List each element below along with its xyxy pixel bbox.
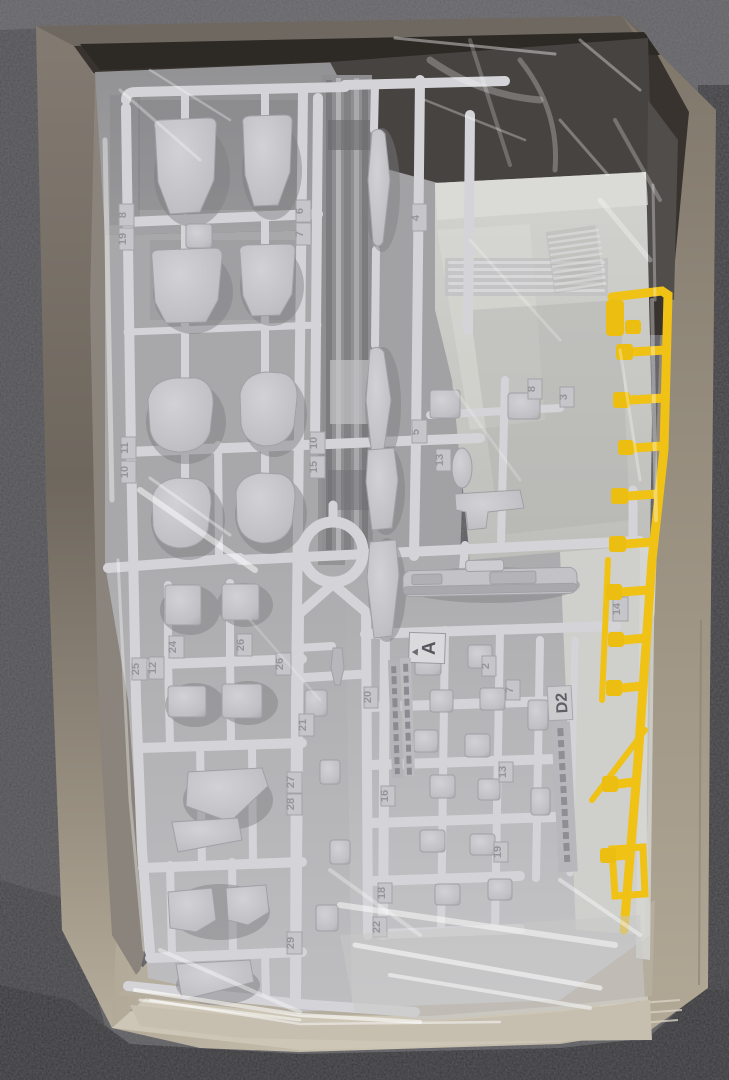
svg-text:22: 22 <box>371 921 383 933</box>
svg-text:10: 10 <box>119 466 131 478</box>
svg-text:D2: D2 <box>553 692 571 713</box>
svg-text:15: 15 <box>308 461 320 473</box>
svg-text:20: 20 <box>362 691 374 703</box>
svg-text:14: 14 <box>611 602 623 615</box>
svg-text:4: 4 <box>410 214 422 221</box>
svg-text:A: A <box>419 641 440 656</box>
svg-text:21: 21 <box>297 719 309 731</box>
svg-text:18: 18 <box>376 887 388 899</box>
svg-text:7: 7 <box>504 687 516 693</box>
svg-text:11: 11 <box>119 442 131 454</box>
svg-text:19: 19 <box>117 233 129 245</box>
svg-text:24: 24 <box>167 640 179 653</box>
svg-text:28: 28 <box>285 798 297 810</box>
svg-text:10: 10 <box>308 437 320 449</box>
svg-text:29: 29 <box>285 937 297 949</box>
svg-text:2: 2 <box>480 663 492 669</box>
svg-text:7: 7 <box>294 231 306 237</box>
svg-text:5: 5 <box>410 429 422 435</box>
svg-text:26: 26 <box>235 639 247 651</box>
svg-text:19: 19 <box>492 846 504 858</box>
svg-text:12: 12 <box>147 662 159 674</box>
svg-text:13: 13 <box>434 454 446 466</box>
svg-text:8: 8 <box>117 212 129 218</box>
svg-text:6: 6 <box>294 208 306 214</box>
svg-text:8: 8 <box>526 386 538 392</box>
svg-text:13: 13 <box>497 766 509 778</box>
svg-text:3: 3 <box>558 394 570 400</box>
svg-text:16: 16 <box>379 790 391 802</box>
svg-text:27: 27 <box>285 776 297 788</box>
svg-text:25: 25 <box>130 663 142 675</box>
